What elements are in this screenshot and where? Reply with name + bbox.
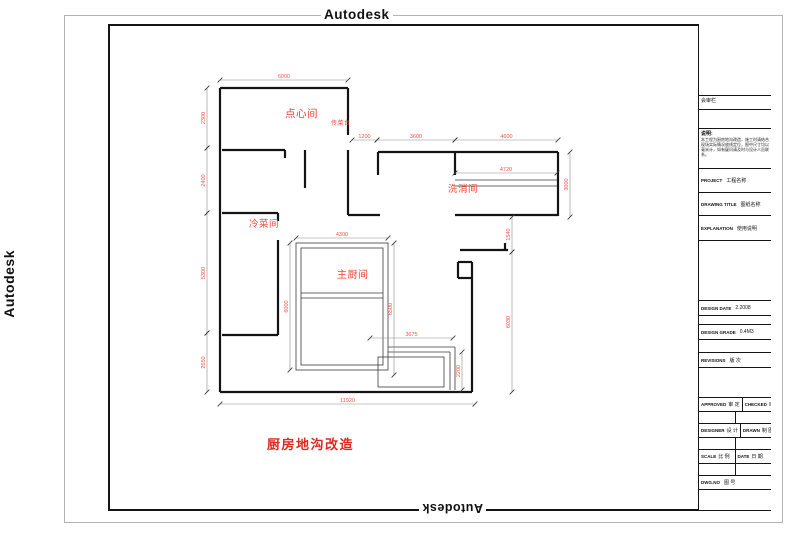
dimension-label: 1540 [506, 228, 512, 240]
floor-plan-svg: 6000120036004600472043003675119202300240… [0, 0, 800, 540]
trench-outline [296, 243, 388, 370]
room-label: 冷菜间 [249, 218, 279, 230]
dimension-label: 3675 [405, 332, 417, 338]
room-label: 点心间 [285, 107, 318, 120]
autodesk-watermark-top: Autodesk [321, 7, 393, 22]
dimension-label: 2200 [456, 365, 462, 377]
dimension-label: 3000 [564, 178, 570, 190]
dimension-label: 6500 [388, 303, 394, 315]
dimension-label: 2300 [201, 112, 207, 124]
dimension-label: 2400 [201, 174, 207, 186]
room-label: 传菜台 [331, 119, 351, 127]
cad-plot-sheet: 会审栏说明:本工程为厨房地沟改造，施工时请结合现场实际情况放线定位，图中尺寸均以… [0, 0, 800, 540]
dimension-label: 6030 [506, 316, 512, 328]
dimension-label: 1200 [358, 134, 370, 140]
dimension-label: 5300 [201, 267, 207, 279]
dimension-label: 6000 [284, 300, 290, 312]
autodesk-watermark-bottom: Autodesk [419, 501, 486, 515]
dimension-label: 2650 [201, 356, 207, 368]
trench-outline [301, 248, 383, 365]
dimension-label: 4600 [500, 134, 512, 140]
dimension-label: 6000 [278, 74, 290, 80]
room-label: 主厨间 [337, 268, 369, 281]
dimension-label: 11920 [340, 398, 355, 404]
dimension-label: 4300 [336, 232, 348, 238]
dimension-label: 3600 [410, 134, 422, 140]
room-label: 洗消间 [448, 183, 478, 195]
dimension-label: 4720 [500, 167, 512, 173]
